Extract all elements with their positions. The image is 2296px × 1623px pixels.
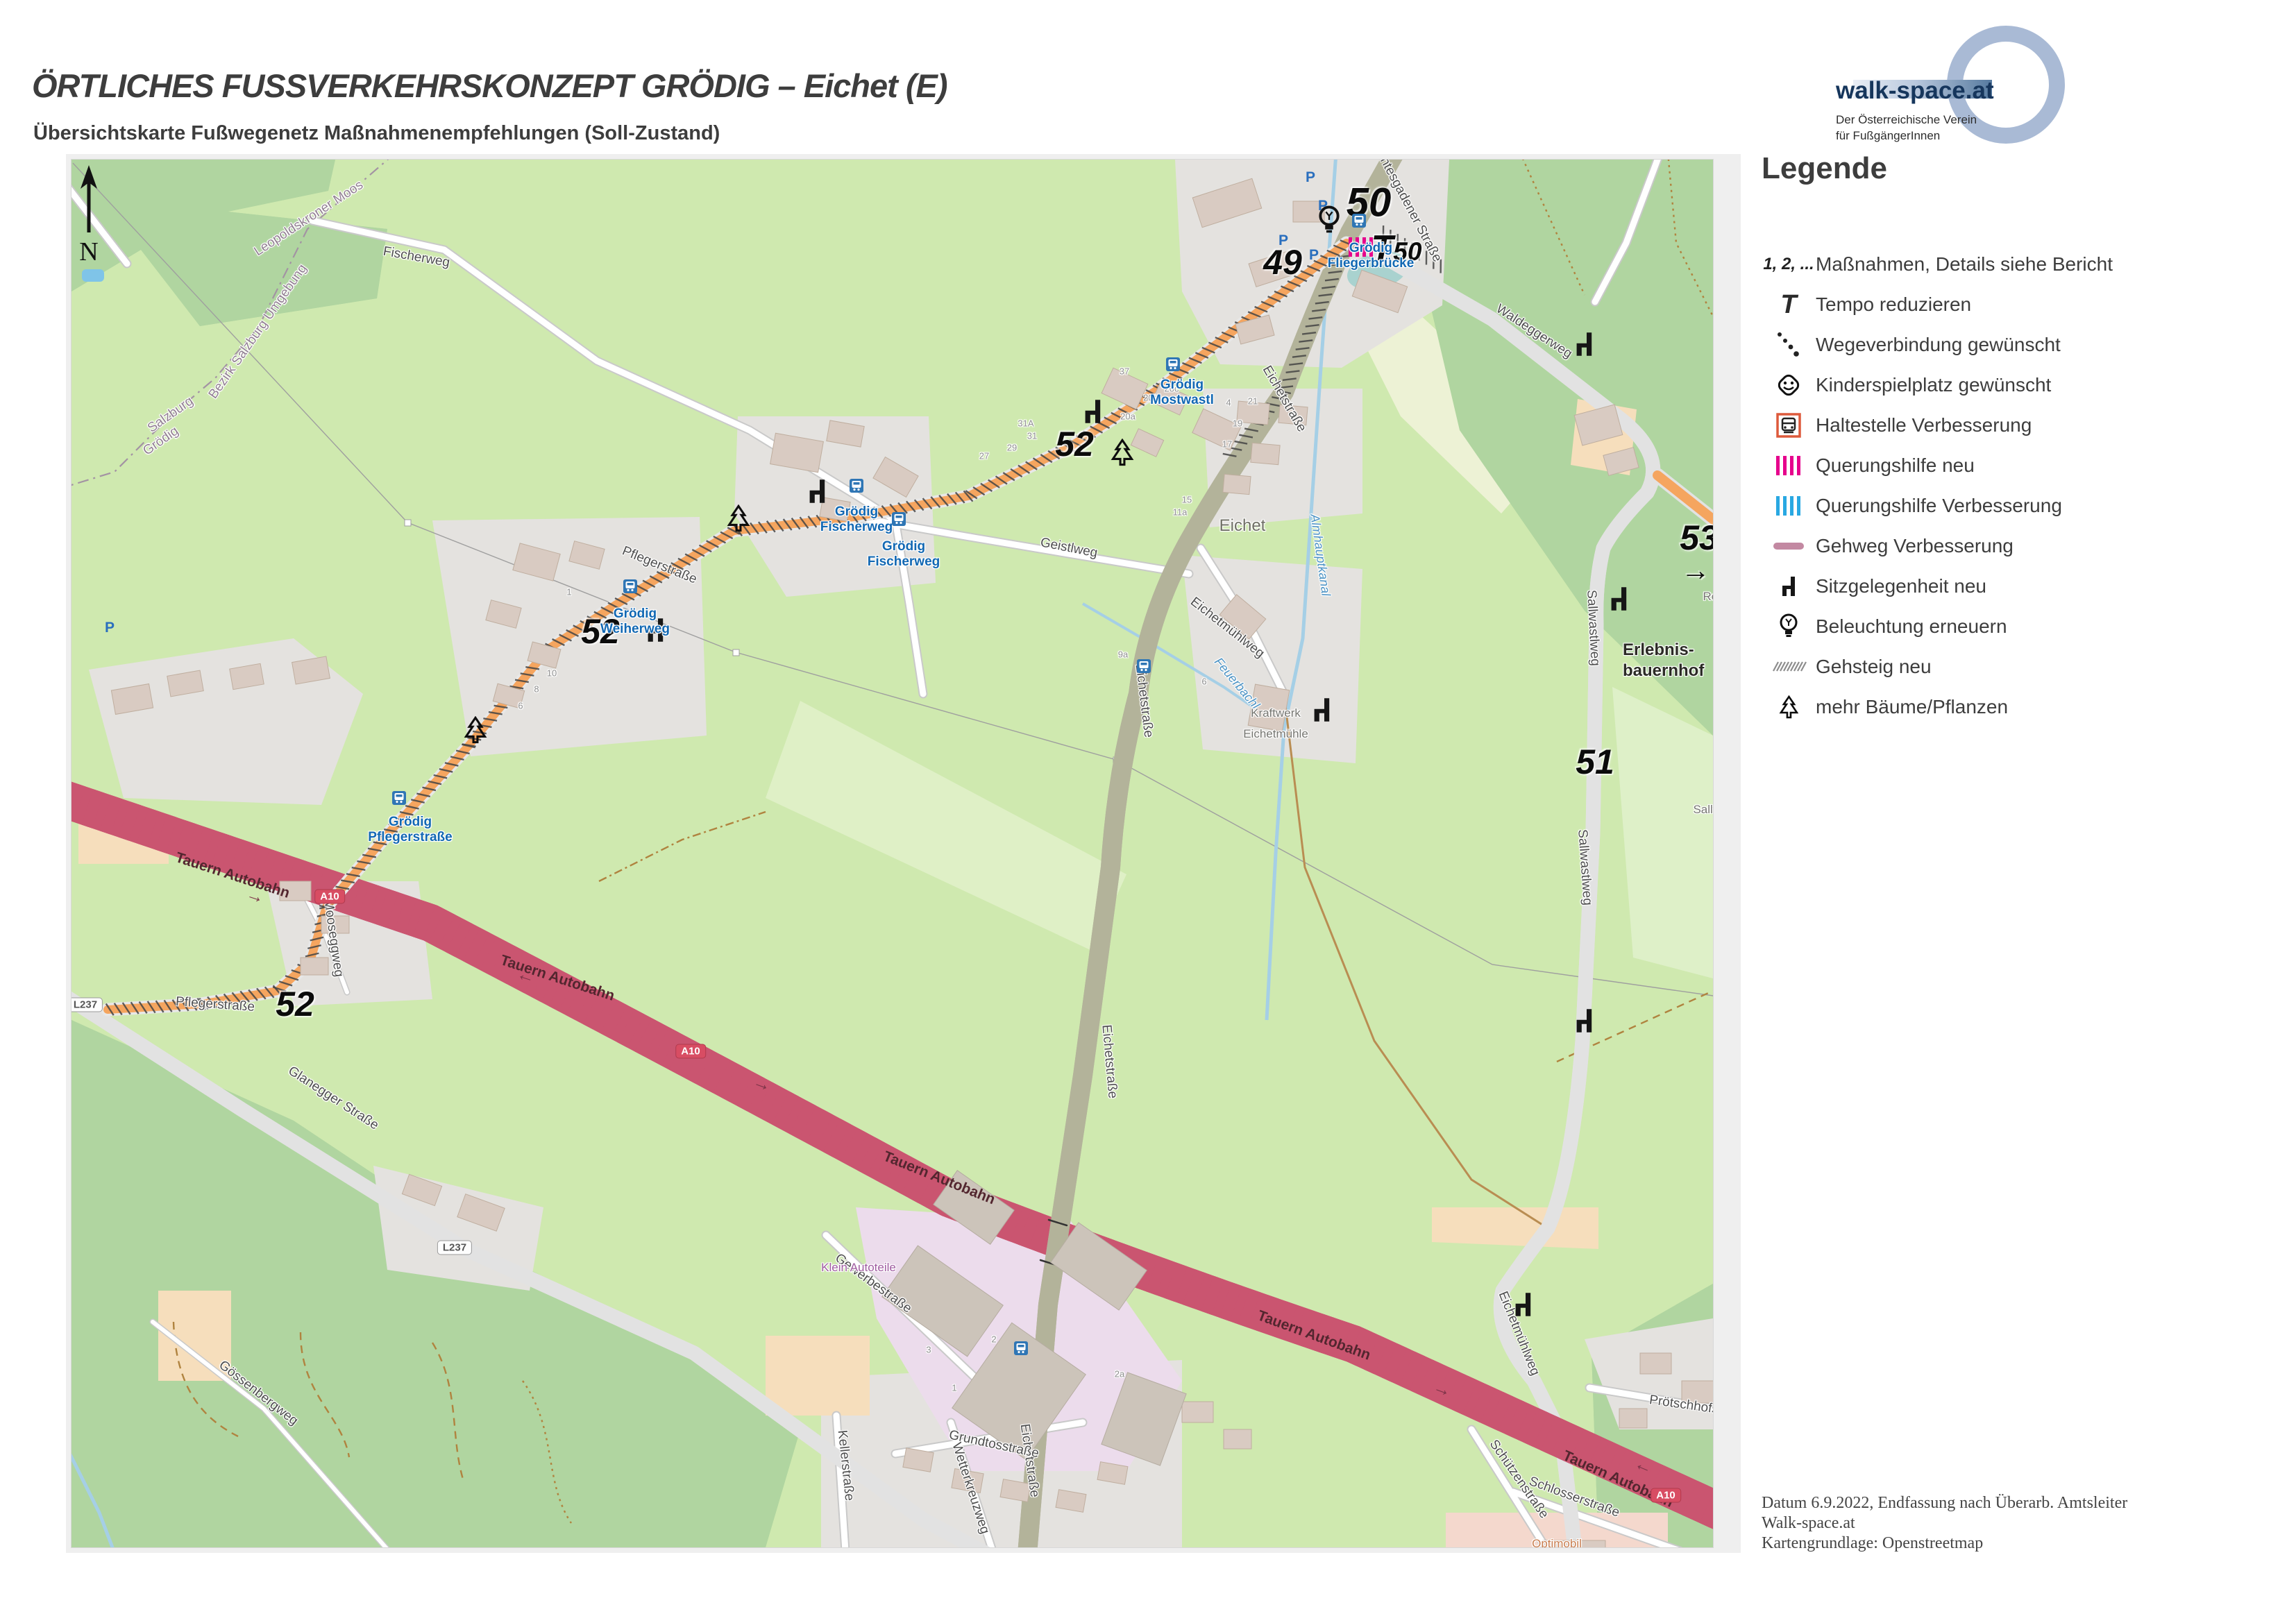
map-label: Sallwastl: [1693, 803, 1713, 817]
map-label: Waldeggerweg: [1493, 301, 1575, 362]
map-label: Geistlweg: [1039, 535, 1099, 561]
legend-item-label: Maßnahmen, Details siehe Bericht: [1816, 253, 2113, 275]
map-label: Klein Autoteile: [821, 1261, 896, 1275]
svg-text:N: N: [79, 237, 98, 266]
legend-item-label: Gehsteig neu: [1816, 656, 1932, 678]
house-number: 4: [1226, 398, 1231, 408]
legend-item-bars-blue: Querungshilfe Verbesserung: [1762, 486, 2289, 526]
map-label: Sallwastlweg: [1574, 829, 1595, 906]
map-label: Eichetstraße: [1259, 363, 1309, 434]
route-badge-A10: A10: [675, 1044, 706, 1059]
house-number: 6: [1201, 677, 1206, 687]
page-title: ÖRTLICHES FUSSVERKEHRSKONZEPT GRÖDIG – E…: [32, 67, 947, 105]
legend-item-chair: Sitzgelegenheit neu: [1762, 566, 2289, 606]
map-label: Mooseggweg: [320, 899, 346, 978]
legend-item-label: Querungshilfe neu: [1816, 454, 1975, 477]
house-number: 9a: [1118, 649, 1128, 660]
legend-item-smiley: Kinderspielplatz gewünscht: [1762, 365, 2289, 405]
legend-item-label: Haltestelle Verbesserung: [1816, 414, 2032, 436]
bus-stop-label: GrödigMostwastl: [1150, 377, 1214, 408]
house-number: 15: [1182, 495, 1192, 505]
measure-number-53: 53: [1680, 518, 1713, 558]
map-label: Pflegerstraße: [175, 994, 255, 1015]
map-label: Eichetmühle: [1243, 727, 1308, 741]
map-label: Optimobil: [1532, 1537, 1582, 1547]
map-label: Kellerstraße: [834, 1429, 857, 1502]
house-number: 37: [1120, 366, 1129, 377]
north-arrow: N: [71, 160, 106, 271]
legend-item-tempo: T Tempo reduzieren: [1762, 284, 2289, 325]
parking-icon: P: [1306, 169, 1315, 186]
bus-stop-icon: [1137, 659, 1151, 673]
map-label: Prötschhofstraße: [1648, 1393, 1713, 1422]
parking-icon: P: [1318, 198, 1328, 214]
map-label: Eichetstraße: [1098, 1024, 1120, 1099]
legend-item-measure-numbers: 1, 2, ... Maßnahmen, Details siehe Beric…: [1762, 244, 2289, 284]
house-number: 2a: [1115, 1369, 1124, 1379]
direction-arrow-53: →: [1681, 554, 1710, 587]
legend-item-label: Gehweg Verbesserung: [1816, 535, 2014, 557]
chair-icon: [1762, 576, 1816, 597]
bus-stop-icon: [892, 512, 906, 526]
map-label: Fischerweg: [382, 244, 451, 271]
bars-blue-icon: [1762, 496, 1816, 516]
legend-item-bars-magenta: Querungshilfe neu: [1762, 445, 2289, 486]
smiley-icon: [1762, 372, 1816, 398]
legend-item-tree: mehr Bäume/Pflanzen: [1762, 687, 2289, 727]
map-label: Tauern Autobahn: [174, 849, 292, 902]
bus-stop-label: GrödigFliegerbrücke: [1328, 241, 1415, 271]
map-labels-layer: Tauern AutobahnTauern AutobahnTauern Aut…: [71, 160, 1713, 1547]
dotted-line-icon: [1762, 331, 1816, 359]
legend-list: 1, 2, ... Maßnahmen, Details siehe Beric…: [1762, 244, 2289, 727]
bus-stop-icon: [1014, 1341, 1028, 1355]
hatch-icon: [1762, 660, 1816, 674]
house-number: 31: [1027, 431, 1037, 441]
map-label: Reiterhof: [1703, 590, 1713, 604]
legend-item-thick-line: Gehweg Verbesserung: [1762, 526, 2289, 566]
house-number: 11a: [1173, 507, 1188, 518]
map-label: Almhauptkanal: [1307, 513, 1333, 597]
house-number: 3: [926, 1345, 931, 1355]
map-label: Wetterkreuzweg: [948, 1441, 992, 1536]
page-subtitle: Übersichtskarte Fußwegenetz Maßnahmenemp…: [33, 122, 720, 145]
legend-item-label: Querungshilfe Verbesserung: [1816, 495, 2062, 517]
thick-line-icon: [1762, 541, 1816, 551]
legend-item-label: Wegeverbindung gewünscht: [1816, 334, 2061, 356]
legend-item-label: Beleuchtung erneuern: [1816, 615, 2007, 638]
house-number: 31A: [1018, 418, 1033, 429]
legend-item-bulb: Beleuchtung erneuern: [1762, 606, 2289, 647]
house-number: 17: [1222, 439, 1232, 450]
route-badge-A10: A10: [314, 890, 345, 904]
house-number: 1: [566, 587, 571, 597]
map-label: Eichetstraße: [1132, 663, 1156, 739]
measure-numbers-icon: 1, 2, ...: [1762, 255, 1816, 274]
tempo-icon: T: [1762, 290, 1816, 320]
legend-item-dotted-line: Wegeverbindung gewünscht: [1762, 325, 2289, 365]
parking-icon: P: [1309, 247, 1319, 264]
bus-stop-icon: [850, 479, 863, 493]
erlebnisbauernhof-label: Erlebnis-bauernhof: [1623, 640, 1704, 681]
house-number: 2: [991, 1334, 996, 1345]
bus-stop-label: GrödigWeiherweg: [600, 606, 670, 637]
house-number: 1: [952, 1383, 956, 1393]
route-badge-L237: L237: [71, 998, 103, 1012]
logo-tagline: Der Österreichische Verein für Fußgänger…: [1836, 112, 1977, 144]
map-label: Bezirk Salzburg Umgebung: [206, 262, 311, 402]
parking-icon: P: [1278, 232, 1288, 249]
tree-icon: [1762, 695, 1816, 719]
map-label: Eichetmühlweg: [1187, 595, 1267, 662]
map-label: Sallwastlweg: [1583, 590, 1603, 667]
legend-item-label: Sitzgelegenheit neu: [1816, 575, 1986, 597]
legend-item-bus-stop: Haltestelle Verbesserung: [1762, 405, 2289, 445]
house-number: 10: [547, 668, 557, 679]
measure-number-52: 52: [1055, 424, 1094, 464]
map-credits: Datum 6.9.2022, Endfassung nach Überarb.…: [1762, 1493, 2127, 1554]
house-number: 8: [534, 684, 539, 695]
legend-item-hatch: Gehsteig neu: [1762, 647, 2289, 687]
map-label: Gössenbergweg: [216, 1358, 301, 1429]
legend-item-label: mehr Bäume/Pflanzen: [1816, 696, 2008, 718]
map-label: Glanegger Straße: [285, 1064, 382, 1134]
house-number: 20a: [1120, 411, 1136, 422]
bus-stop-icon: [1762, 412, 1816, 439]
route-badge-L237: L237: [437, 1241, 472, 1255]
bars-magenta-icon: [1762, 456, 1816, 475]
map-label: Eichetstraße: [1017, 1423, 1043, 1499]
map-canvas: →←→←→← Tauern AutobahnTauern AutobahnTau…: [71, 160, 1713, 1547]
map-label: Tauern Autobahn: [1255, 1307, 1372, 1363]
map-label: Kraftwerk: [1251, 706, 1301, 720]
legend-title: Legende: [1762, 151, 1887, 186]
bus-stop-icon: [623, 579, 637, 593]
house-number: 21: [1248, 396, 1258, 407]
map-label: Eichet: [1219, 516, 1266, 536]
house-number: 6: [518, 701, 523, 711]
legend-item-label: Kinderspielplatz gewünscht: [1816, 374, 2051, 396]
house-number: 19: [1233, 418, 1242, 429]
parking-icon: P: [105, 620, 115, 636]
house-number: 27: [979, 451, 989, 461]
bulb-icon: [1762, 613, 1816, 640]
bus-stop-label: GrödigPflegerstraße: [368, 815, 452, 845]
house-number: 29: [1007, 443, 1017, 453]
logo-wordmark: walk-space.at: [1836, 77, 1994, 105]
legend-item-label: Tempo reduzieren: [1816, 294, 1971, 316]
bus-stop-icon: [1352, 214, 1366, 228]
map-label: Tauern Autobahn: [498, 952, 617, 1005]
bus-stop-icon: [392, 791, 406, 805]
bus-stop-icon: [1166, 357, 1180, 371]
bus-stop-label: GrödigFischerweg: [820, 504, 893, 535]
map-label: Tauern Autobahn: [881, 1148, 997, 1208]
measure-number-51: 51: [1576, 742, 1614, 782]
map-label: Feuerbachl: [1211, 655, 1263, 712]
bus-stop-label: GrödigFischerweg: [868, 539, 940, 570]
map-label: Leopoldskroner Moos: [251, 178, 366, 260]
walk-space-logo: walk-space.at Der Österreichische Verein…: [1836, 17, 2225, 163]
route-badge-A10: A10: [1651, 1488, 1681, 1503]
measure-number-52: 52: [276, 984, 314, 1024]
